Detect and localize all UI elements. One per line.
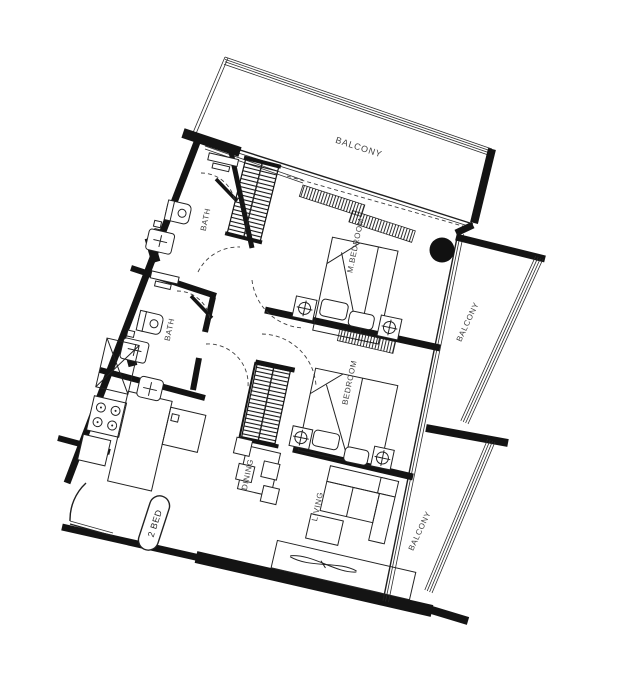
balcony-railing bbox=[461, 256, 543, 424]
balcony-wall bbox=[456, 237, 545, 259]
floor-plan: BALCONY BALCONY BALCONY M.BEDROOM BEDROO… bbox=[0, 0, 622, 676]
kitchen-island bbox=[162, 407, 206, 452]
label-bath-lower: BATH bbox=[163, 317, 177, 342]
chair bbox=[260, 485, 279, 504]
unit-type-badge: 2 BED bbox=[136, 493, 172, 552]
chair bbox=[261, 461, 280, 480]
balcony-top-end-wall bbox=[474, 149, 492, 223]
label-balcony-right-lower: BALCONY bbox=[407, 510, 433, 552]
label-living: LIVING bbox=[310, 491, 325, 522]
label-bedroom: BEDROOM bbox=[340, 359, 358, 405]
kitchen-sink-icon bbox=[136, 376, 164, 402]
floor-plan-canvas: BALCONY BALCONY BALCONY M.BEDROOM BEDROO… bbox=[0, 0, 622, 676]
label-balcony-right-upper: BALCONY bbox=[455, 301, 481, 343]
kitchen-fixtures bbox=[74, 384, 207, 500]
label-balcony-top: BALCONY bbox=[334, 135, 383, 160]
balcony-railing bbox=[425, 439, 495, 593]
balcony-right-lower bbox=[425, 439, 495, 593]
pillow bbox=[312, 429, 341, 450]
label-bath-top: BATH bbox=[199, 207, 213, 232]
wardrobe-icon bbox=[239, 362, 294, 447]
master-bedroom bbox=[225, 158, 454, 348]
shower-swing-arc bbox=[201, 173, 235, 203]
stove-icon bbox=[87, 396, 127, 438]
balcony-right-upper bbox=[456, 237, 545, 424]
bath-top-door-arc bbox=[198, 247, 240, 272]
left-wall bbox=[67, 137, 199, 483]
bottom-wall-east bbox=[425, 608, 468, 621]
toilet-icon bbox=[136, 310, 164, 335]
label-m-bedroom: M.BEDROOM bbox=[345, 217, 365, 273]
bottom-wall-thick bbox=[196, 557, 432, 611]
bath-lower-door-arc bbox=[206, 344, 248, 387]
structural-column bbox=[430, 238, 455, 263]
bottom-wall-west bbox=[62, 527, 200, 558]
top-right-corner bbox=[456, 225, 473, 233]
cabinet-icon bbox=[78, 434, 111, 466]
balcony-divider-wall bbox=[426, 428, 508, 443]
dining-set bbox=[224, 437, 288, 504]
chair bbox=[233, 437, 252, 456]
pillow bbox=[319, 298, 349, 320]
